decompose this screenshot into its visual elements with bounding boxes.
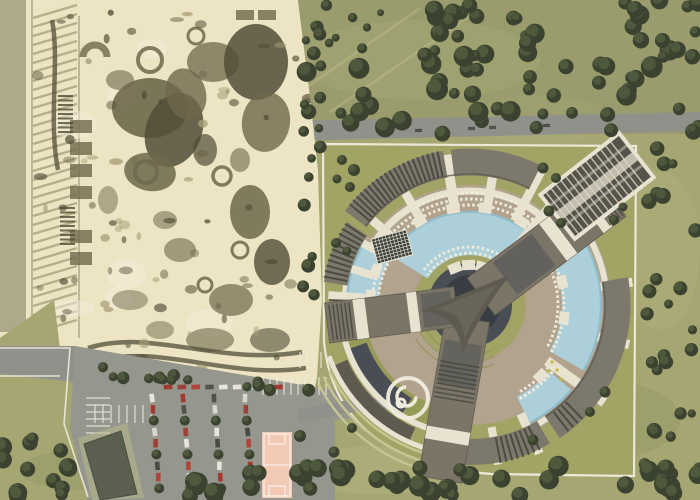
- car: [186, 462, 191, 471]
- tree-crown: [544, 206, 551, 213]
- tree-crown: [332, 466, 345, 479]
- park-detail: [242, 283, 253, 288]
- tree-crown: [452, 30, 460, 38]
- tree-crown: [47, 474, 56, 483]
- tree-crown: [688, 410, 693, 415]
- park-detail: [163, 218, 175, 224]
- tree-crown: [211, 416, 217, 422]
- park-detail: [142, 91, 147, 100]
- tree-crown: [54, 444, 63, 453]
- tree-crown: [214, 450, 220, 456]
- tree-crown: [378, 10, 382, 14]
- car: [215, 439, 220, 448]
- tree-crown: [348, 423, 354, 429]
- tree-crown: [628, 2, 638, 12]
- park-feature: [209, 284, 253, 316]
- tree-crown: [666, 432, 672, 438]
- tree-crown: [600, 387, 607, 394]
- tree-crown: [167, 376, 173, 382]
- tree-crown: [10, 487, 21, 498]
- park-building: [70, 120, 92, 133]
- tree-crown: [643, 285, 652, 294]
- tree-crown: [308, 154, 313, 159]
- park-detail: [103, 307, 113, 312]
- park-detail: [160, 269, 168, 278]
- tree-crown: [440, 481, 448, 489]
- tree-crown: [538, 109, 545, 116]
- deck-planting: [559, 377, 563, 381]
- park-building: [236, 10, 254, 20]
- tree-crown: [413, 461, 422, 470]
- car: [489, 126, 496, 129]
- tree-crown: [346, 182, 352, 188]
- park-feature: [224, 24, 288, 100]
- tree-crown: [118, 372, 126, 380]
- park-detail: [67, 14, 75, 19]
- car: [153, 439, 158, 448]
- park-detail: [245, 204, 253, 210]
- tree-crown: [651, 142, 660, 151]
- car: [218, 473, 223, 482]
- car: [212, 405, 217, 414]
- tree-crown: [686, 344, 694, 352]
- tree-crown: [315, 141, 323, 149]
- tree-crown: [418, 48, 427, 57]
- tree-crown: [155, 484, 161, 490]
- tree-crown: [528, 435, 535, 442]
- tree-crown: [298, 63, 310, 75]
- tree-crown: [512, 13, 519, 20]
- tree-crown: [557, 218, 563, 224]
- tree-crown: [309, 290, 316, 297]
- car: [212, 394, 217, 403]
- tree-crown: [245, 450, 251, 456]
- park-detail: [125, 342, 130, 348]
- park-detail: [119, 267, 133, 275]
- tree-crown: [436, 126, 446, 136]
- tree-crown: [27, 433, 35, 441]
- park-detail: [57, 20, 66, 24]
- park-detail: [104, 34, 110, 44]
- tree-crown: [428, 79, 442, 93]
- tree-crown: [244, 479, 255, 490]
- tree-crown: [158, 375, 164, 381]
- tree-crown: [351, 103, 363, 115]
- car: [468, 127, 475, 130]
- park-detail: [204, 219, 210, 223]
- tree-crown: [325, 39, 330, 44]
- park-detail: [158, 99, 163, 105]
- tree-crown: [686, 50, 696, 60]
- swimming-pool: [567, 249, 582, 361]
- tree-crown: [243, 382, 249, 388]
- tree-crown: [426, 1, 438, 13]
- park-detail: [59, 204, 68, 211]
- park-detail: [257, 44, 270, 49]
- tree-crown: [586, 407, 592, 413]
- park-detail: [62, 309, 72, 314]
- tree-crown: [512, 487, 522, 497]
- car: [543, 124, 550, 127]
- tree-crown: [656, 34, 665, 43]
- park-detail: [136, 232, 141, 240]
- tree-crown: [302, 37, 307, 42]
- tree-crown: [619, 203, 625, 209]
- tree-crown: [184, 376, 190, 382]
- tree-crown: [689, 224, 698, 233]
- tree-crown: [454, 464, 462, 472]
- tree-crown: [593, 76, 602, 85]
- park-detail: [265, 294, 273, 300]
- tree-crown: [242, 416, 248, 422]
- tree-crown: [149, 416, 155, 422]
- park-detail: [218, 87, 231, 92]
- tree-crown: [336, 108, 343, 115]
- tree-crown: [688, 326, 694, 332]
- park-detail: [119, 220, 130, 229]
- park-detail: [148, 162, 161, 167]
- tree-crown: [315, 124, 320, 129]
- tree-crown: [660, 356, 669, 365]
- tree-crown: [349, 164, 356, 171]
- tree-crown: [299, 199, 307, 207]
- park-detail: [274, 355, 280, 361]
- car: [152, 427, 157, 436]
- tree-crown: [314, 28, 322, 36]
- tree-crown: [305, 173, 311, 179]
- tree-crown: [669, 159, 675, 165]
- site-plan-rendering: [0, 0, 700, 500]
- tree-crown: [265, 385, 272, 392]
- tree-crown: [656, 477, 667, 488]
- tree-crown: [315, 92, 322, 99]
- outer-building-roof: [453, 162, 535, 178]
- tree-crown: [548, 89, 557, 98]
- tree-crown: [666, 485, 677, 496]
- tree-crown: [393, 112, 405, 124]
- tree-crown: [308, 252, 314, 258]
- park-detail: [65, 135, 75, 144]
- tree-crown: [436, 28, 443, 35]
- tree-crown: [501, 102, 514, 115]
- tree-crown: [329, 447, 336, 454]
- park-detail: [154, 303, 167, 312]
- tree-crown: [674, 103, 682, 111]
- car: [217, 462, 222, 471]
- pool-pavilion: [558, 311, 570, 325]
- car: [219, 384, 228, 389]
- tree-crown: [455, 47, 468, 60]
- park-detail: [198, 120, 208, 128]
- park-left-road: [0, 0, 26, 332]
- tree-crown: [322, 0, 329, 7]
- tree-crown: [642, 194, 652, 204]
- tree-crown: [253, 379, 261, 387]
- park-feature: [193, 134, 217, 166]
- tree-crown: [302, 259, 311, 268]
- park-building: [70, 252, 92, 265]
- tree-crown: [531, 121, 539, 129]
- tree-crown: [658, 52, 665, 59]
- tree-crown: [350, 59, 363, 72]
- tree-crown: [370, 471, 381, 482]
- tree-crown: [601, 108, 610, 117]
- pool-pavilion: [478, 202, 492, 214]
- park-detail: [197, 150, 208, 157]
- car: [233, 384, 242, 389]
- park-feature: [146, 321, 174, 339]
- tree-crown: [689, 125, 695, 131]
- tree-crown: [316, 61, 323, 68]
- tree-crown: [295, 430, 302, 437]
- park-detail: [100, 234, 109, 242]
- tree-crown: [343, 247, 349, 253]
- tree-crown: [183, 450, 189, 456]
- tree-crown: [333, 175, 339, 181]
- park-detail: [274, 42, 286, 48]
- deck-planting: [555, 368, 559, 372]
- tree-crown: [628, 71, 639, 82]
- park-feature: [112, 290, 148, 310]
- park-detail: [195, 20, 207, 28]
- park-detail: [109, 158, 123, 165]
- car: [156, 473, 161, 482]
- park-feature: [230, 148, 250, 172]
- tree-crown: [647, 357, 655, 365]
- park-building: [70, 230, 92, 243]
- park-detail: [81, 159, 88, 164]
- car: [243, 394, 248, 403]
- sports-court: [262, 432, 292, 498]
- park-detail: [106, 101, 117, 110]
- tree-crown: [471, 63, 480, 72]
- tree-crown: [338, 155, 344, 161]
- tree-crown: [674, 282, 683, 291]
- park-detail: [63, 156, 76, 163]
- tree-crown: [180, 416, 186, 422]
- car: [151, 405, 156, 414]
- park-detail: [152, 277, 159, 282]
- park-detail: [108, 267, 113, 275]
- car: [214, 428, 219, 437]
- park-detail: [199, 71, 208, 78]
- car: [246, 439, 251, 448]
- park-detail: [240, 276, 250, 283]
- tree-crown: [642, 57, 655, 70]
- park-feature: [106, 70, 134, 90]
- tree-crown: [465, 86, 476, 97]
- tree-crown: [311, 21, 317, 27]
- park-detail: [292, 55, 299, 61]
- park-detail: [182, 12, 193, 16]
- pool-pavilion: [462, 260, 475, 270]
- tree-crown: [634, 33, 644, 43]
- park-detail: [185, 285, 197, 294]
- tree-crown: [559, 60, 568, 69]
- park-detail: [108, 10, 114, 16]
- park-detail: [32, 71, 44, 80]
- park-detail: [43, 204, 48, 214]
- car: [180, 394, 185, 403]
- tree-crown: [152, 450, 158, 456]
- park-detail: [184, 177, 193, 181]
- park-detail: [188, 331, 192, 340]
- park-detail: [36, 285, 43, 291]
- park-feature: [230, 185, 270, 239]
- car: [205, 384, 214, 389]
- park-detail: [222, 314, 227, 323]
- park-detail: [59, 278, 68, 285]
- tree-crown: [605, 124, 614, 133]
- tree-crown: [649, 425, 658, 434]
- park-detail: [127, 28, 136, 35]
- park-detail: [264, 115, 269, 121]
- tree-crown: [690, 27, 697, 34]
- park-detail: [170, 17, 184, 22]
- tree-crown: [376, 118, 388, 130]
- car: [244, 405, 249, 414]
- park-detail: [216, 303, 221, 309]
- tree-crown: [552, 173, 558, 179]
- tree-crown: [310, 460, 321, 471]
- tree-crown: [492, 102, 501, 111]
- tree-crown: [520, 35, 531, 46]
- park-building: [70, 186, 92, 199]
- park-detail: [139, 339, 150, 348]
- tree-crown: [641, 461, 653, 473]
- tree-crown: [641, 308, 649, 316]
- tree-crown: [524, 71, 533, 80]
- park-detail: [190, 249, 199, 257]
- tree-crown: [99, 363, 105, 369]
- tree-crown: [670, 42, 680, 52]
- park-detail: [284, 279, 296, 289]
- tree-crown: [299, 126, 306, 133]
- tree-crown: [332, 238, 338, 244]
- tree-crown: [618, 86, 631, 99]
- tree-crown: [304, 482, 313, 491]
- tree-crown: [524, 84, 532, 92]
- tree-crown: [332, 34, 337, 39]
- tree-crown: [618, 477, 629, 488]
- tree-crown: [658, 157, 667, 166]
- park-detail: [86, 155, 98, 159]
- tree-crown: [358, 44, 364, 50]
- park-feature: [98, 186, 118, 214]
- tree-crown: [308, 47, 316, 55]
- car: [191, 384, 200, 389]
- park-detail: [229, 99, 239, 106]
- radial-walkway: [328, 295, 366, 298]
- park-detail: [217, 92, 228, 100]
- tree-crown: [494, 470, 505, 481]
- tree-crown: [598, 58, 609, 69]
- tree-crown: [656, 189, 666, 199]
- tree-crown: [567, 107, 574, 114]
- tree-crown: [62, 462, 72, 472]
- tree-crown: [470, 103, 483, 116]
- tree-crown: [538, 163, 545, 170]
- park-detail: [85, 58, 91, 64]
- park-detail: [89, 202, 96, 209]
- tree-crown: [610, 215, 616, 221]
- tree-crown: [298, 281, 305, 288]
- car: [177, 384, 186, 389]
- tree-crown: [675, 408, 683, 416]
- tree-crown: [109, 373, 115, 379]
- tree-crown: [651, 273, 659, 281]
- tree-crown: [56, 489, 64, 497]
- park-detail: [71, 277, 78, 284]
- park-detail: [60, 315, 66, 323]
- tree-crown: [303, 385, 309, 391]
- tree-crown: [21, 462, 30, 471]
- car: [155, 461, 160, 470]
- deck-planting: [546, 369, 550, 373]
- tree-crown: [659, 460, 669, 470]
- park-building: [70, 164, 92, 177]
- tree-crown: [356, 87, 366, 97]
- site-plan-svg: [0, 0, 700, 500]
- park-building: [258, 10, 276, 20]
- tree-crown: [665, 300, 671, 306]
- park-detail: [122, 236, 127, 243]
- park-detail: [132, 156, 138, 166]
- tree-crown: [189, 473, 202, 486]
- car: [415, 129, 422, 132]
- car: [164, 384, 173, 389]
- park-detail: [265, 259, 278, 264]
- park-building: [70, 142, 92, 155]
- car: [183, 428, 188, 437]
- tree-crown: [682, 1, 689, 8]
- tree-crown: [205, 483, 217, 495]
- tree-crown: [550, 457, 563, 470]
- deck-planting: [550, 360, 554, 364]
- tree-crown: [252, 466, 262, 476]
- tree-crown: [443, 14, 453, 24]
- park-detail: [34, 173, 48, 180]
- tree-crown: [410, 476, 423, 489]
- car: [184, 439, 189, 448]
- tree-crown: [145, 374, 151, 380]
- tree-crown: [300, 100, 306, 106]
- park-feature: [164, 238, 196, 262]
- park-detail: [253, 326, 259, 336]
- tree-crown: [450, 88, 457, 95]
- tree-crown: [349, 13, 355, 19]
- tree-crown: [363, 24, 368, 29]
